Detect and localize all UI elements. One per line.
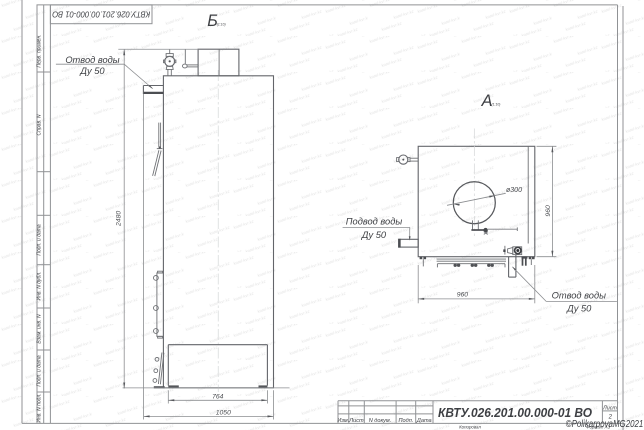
svg-text:Ду 50: Ду 50 [361,230,387,240]
svg-text:А: А [481,92,493,110]
svg-text:1050: 1050 [216,410,231,417]
svg-text:Лист: Лист [348,418,364,424]
svg-text:Справ. N: Справ. N [37,114,43,135]
svg-text:764: 764 [212,393,224,400]
svg-text:Ду 50: Ду 50 [79,66,105,76]
svg-text:Б: Б [207,12,218,30]
svg-text:(1:10): (1:10) [217,22,226,26]
svg-text:Инв. N подл.: Инв. N подл. [37,393,43,422]
svg-text:2480: 2480 [116,211,123,227]
svg-text:©PolikarpovaMG2021: ©PolikarpovaMG2021 [566,419,644,430]
svg-text:Ду 50: Ду 50 [566,304,592,314]
svg-text:Подп. и дата: Подп. и дата [37,224,43,256]
svg-text:N докум.: N докум. [369,418,392,424]
svg-text:(1:10): (1:10) [492,102,501,106]
svg-text:Подп. и дата: Подп. и дата [37,355,43,387]
svg-text:Взам. инв. N: Взам. инв. N [37,314,43,344]
svg-text:960: 960 [545,205,552,217]
svg-text:КВТУ.026.201.00.000-01 ВО: КВТУ.026.201.00.000-01 ВО [52,9,150,18]
svg-text:Копировал: Копировал [459,425,481,430]
svg-text:Лист: Лист [602,405,617,411]
svg-text:Дата: Дата [416,418,432,424]
svg-text:Подвод воды: Подвод воды [346,217,403,227]
svg-text:Изм.: Изм. [337,418,349,424]
svg-text:Перв. примен.: Перв. примен. [37,34,43,67]
svg-text:КВТУ.026.201.00.000-01 ВО: КВТУ.026.201.00.000-01 ВО [438,405,592,420]
svg-text:Подп.: Подп. [398,418,413,424]
svg-text:Отвод воды: Отвод воды [65,55,119,65]
svg-text:Отвод воды: Отвод воды [552,291,606,301]
svg-text:ø300: ø300 [506,187,522,194]
svg-text:Инв. N дубл.: Инв. N дубл. [37,272,43,301]
svg-text:960: 960 [457,291,469,298]
